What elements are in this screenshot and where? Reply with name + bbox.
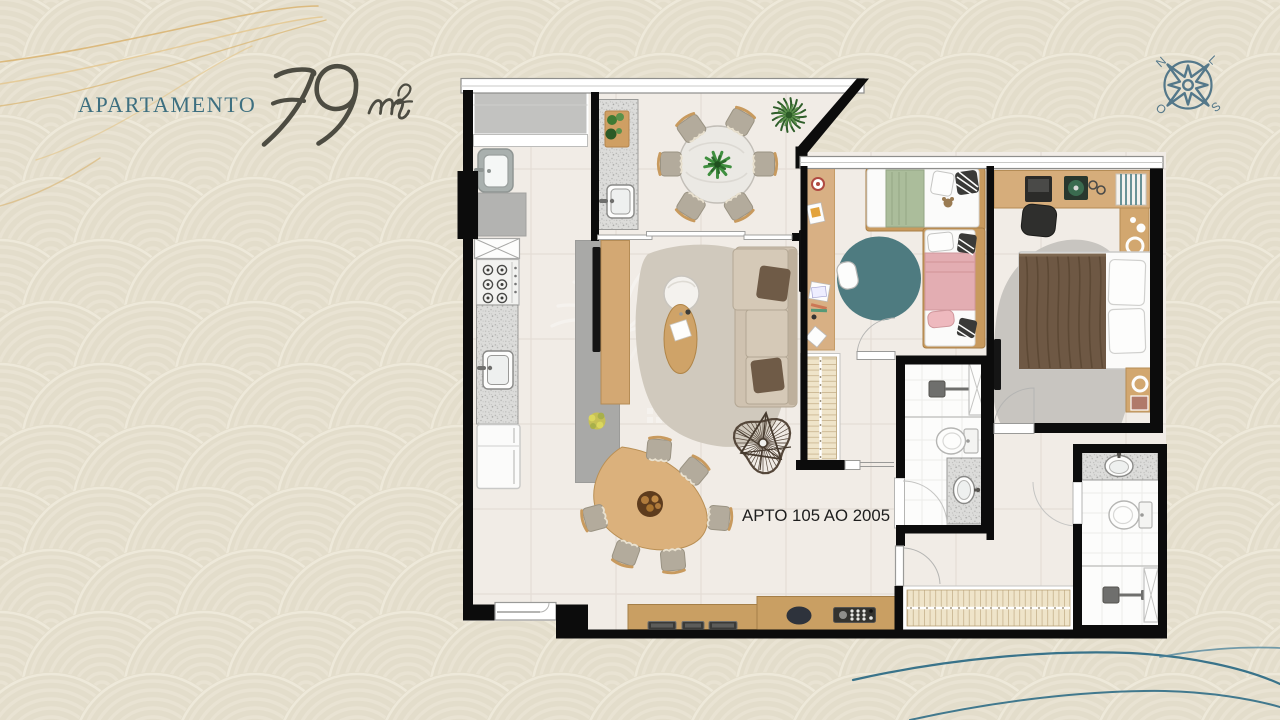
svg-text:APTO 105 AO 2005: APTO 105 AO 2005 — [742, 506, 890, 525]
svg-text:APARTAMENTO: APARTAMENTO — [78, 92, 256, 117]
